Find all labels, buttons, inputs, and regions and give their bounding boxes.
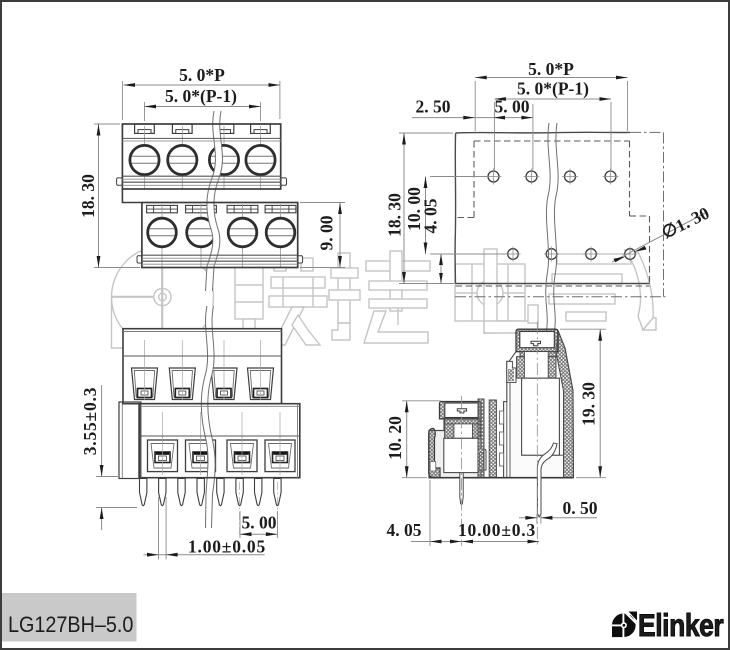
svg-text:5. 00: 5. 00 — [495, 97, 530, 117]
svg-text:3.55±0.3: 3.55±0.3 — [80, 387, 100, 456]
svg-text:0. 50: 0. 50 — [563, 498, 598, 518]
svg-text:4. 05: 4. 05 — [387, 520, 422, 540]
svg-text:LG127BH–5.0: LG127BH–5.0 — [8, 613, 133, 637]
svg-text:10.00±0.3: 10.00±0.3 — [458, 520, 536, 540]
svg-text:1.00±0.05: 1.00±0.05 — [188, 537, 266, 557]
svg-text:10. 20: 10. 20 — [385, 416, 405, 460]
svg-text:19. 30: 19. 30 — [579, 382, 599, 426]
svg-text:18. 30: 18. 30 — [385, 193, 405, 237]
svg-text:Elinker: Elinker — [638, 609, 723, 644]
svg-text:5. 00: 5. 00 — [242, 513, 277, 533]
svg-text:4. 05: 4. 05 — [421, 198, 441, 233]
svg-text:5. 0*(P-1): 5. 0*(P-1) — [517, 79, 589, 99]
svg-text:18. 30: 18. 30 — [78, 174, 98, 218]
svg-text:9. 00: 9. 00 — [317, 215, 337, 250]
svg-text:5. 0*P: 5. 0*P — [528, 59, 574, 79]
svg-text:2. 50: 2. 50 — [416, 97, 451, 117]
svg-text:∅1. 30: ∅1. 30 — [658, 202, 712, 242]
svg-text:5. 0*(P-1): 5. 0*(P-1) — [165, 86, 237, 106]
svg-text:5. 0*P: 5. 0*P — [179, 65, 225, 85]
